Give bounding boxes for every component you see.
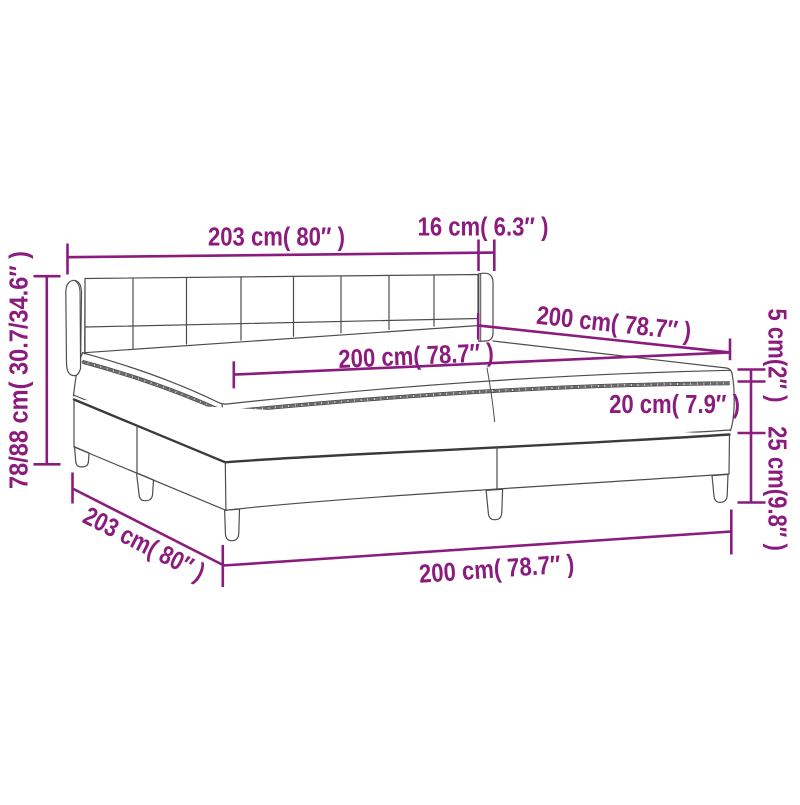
svg-text:25 cm(9.8″ ): 25 cm(9.8″ ) [762,426,791,551]
svg-text:78/88 cm( 30.7/34.6″ ): 78/88 cm( 30.7/34.6″ ) [6,251,34,489]
svg-text:20 cm( 7.9″ ): 20 cm( 7.9″ ) [609,390,740,419]
svg-text:5 cm(2″ ): 5 cm(2″ ) [762,308,791,402]
svg-text:16 cm( 6.3″ ): 16 cm( 6.3″ ) [418,213,549,242]
svg-text:203 cm( 80″ ): 203 cm( 80″ ) [208,223,345,252]
